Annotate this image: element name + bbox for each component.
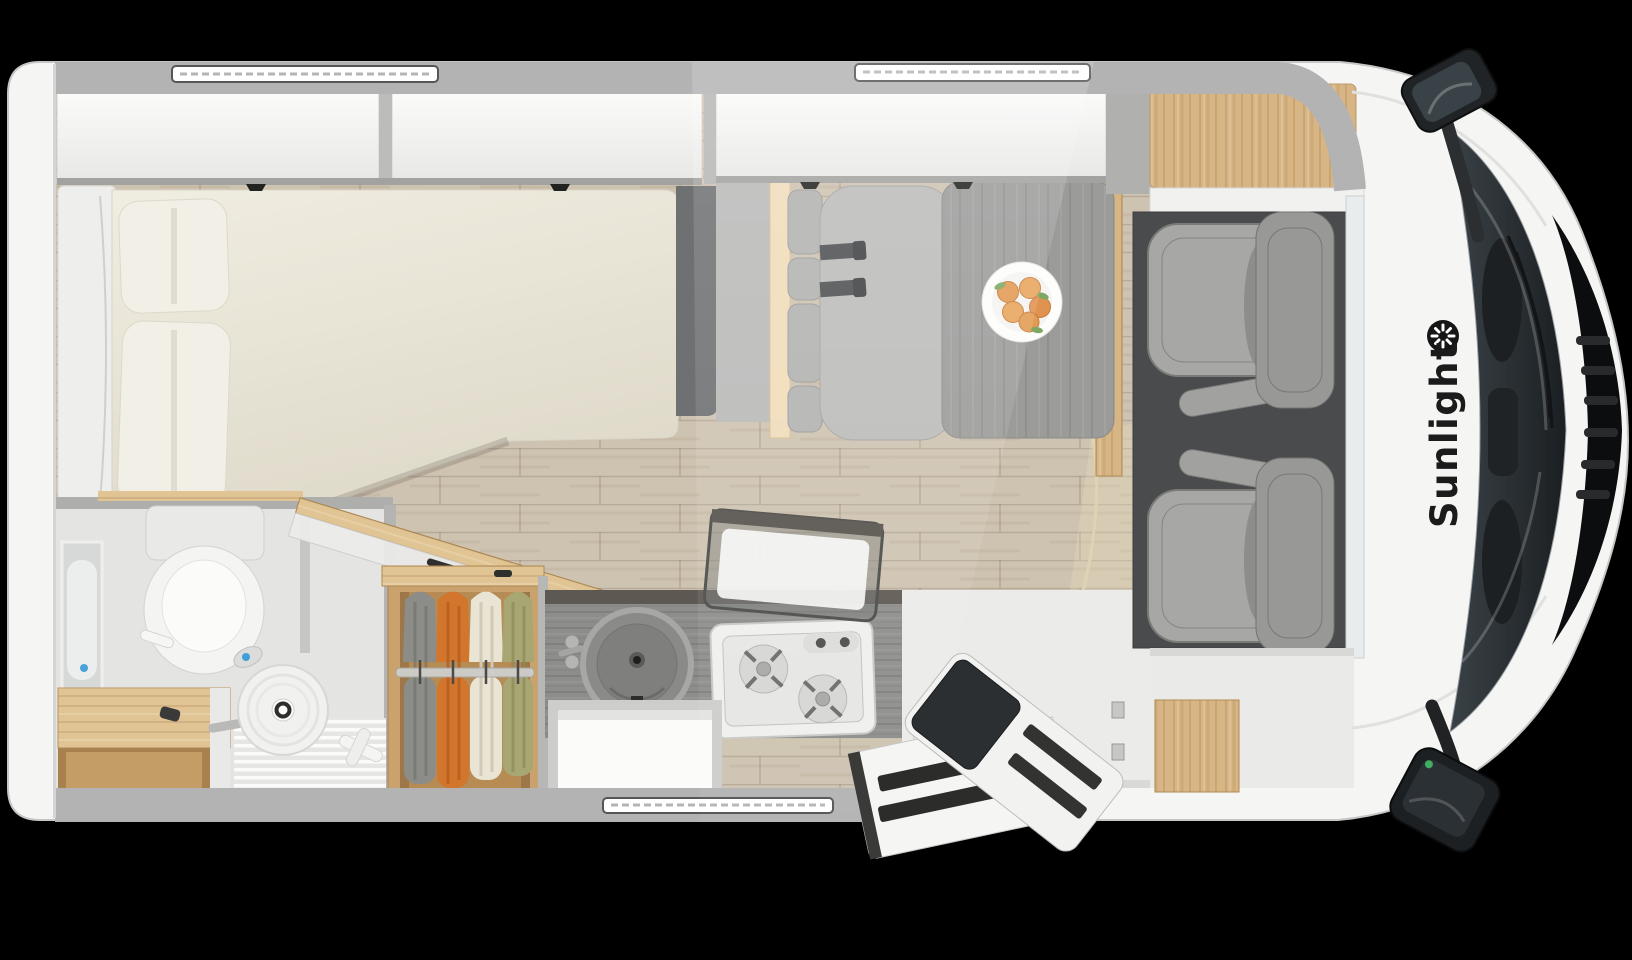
entry-wood-step	[1155, 700, 1239, 792]
logo-text: Sunlight	[1423, 341, 1466, 528]
latch-plate-top	[1112, 702, 1124, 718]
windshield-sill	[1346, 196, 1364, 658]
toilet	[139, 506, 265, 674]
motorhome-floorplan: Sunlight	[0, 0, 1632, 960]
cabinet-bottom-edge-rear	[57, 178, 702, 185]
bathroom-bench	[58, 688, 230, 792]
floorplan-canvas: Sunlight	[0, 0, 1632, 960]
overhead-cabinet-rear-left	[57, 86, 379, 184]
hanging-clothes-orange	[436, 592, 470, 788]
cab-frame-strip	[1150, 188, 1364, 212]
overhead-cabinet-rear-right	[392, 86, 702, 184]
clothes-rail	[396, 668, 534, 677]
hanging-clothes-cream	[469, 592, 503, 780]
roof-window-rear	[172, 66, 438, 82]
entry-sill	[1150, 648, 1354, 656]
wardrobe-handle	[494, 570, 512, 577]
sunlight-logo: Sunlight	[1423, 320, 1466, 528]
door-pocket-wood	[98, 491, 303, 501]
cab-bulkhead-wall	[1106, 86, 1150, 194]
latch-plate-bottom	[1112, 744, 1124, 760]
wardrobe-top-edge	[382, 566, 544, 586]
headboard-panel	[58, 186, 116, 513]
rear-wall-line	[53, 64, 56, 818]
hanging-clothes-gray	[403, 592, 437, 784]
under-sink-cabinet	[548, 700, 722, 792]
cabinet-divider	[379, 86, 392, 184]
wardrobe	[382, 566, 548, 798]
